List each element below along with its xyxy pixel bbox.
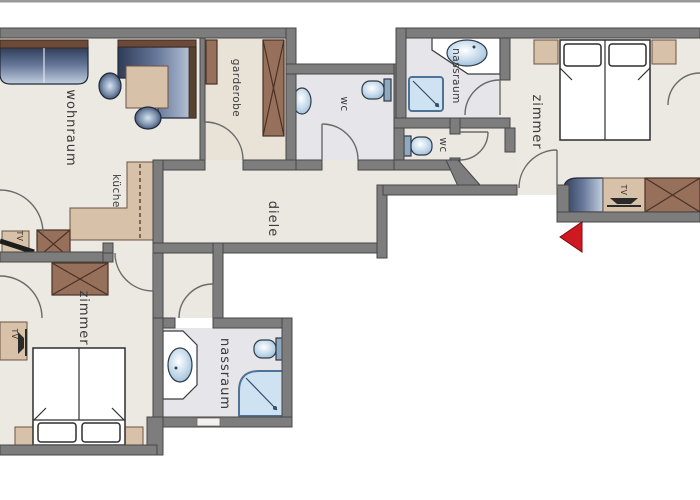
floor-corridor xyxy=(163,253,213,318)
toilet-tank xyxy=(384,79,391,101)
chair xyxy=(99,73,121,99)
entrance-arrow-icon xyxy=(560,222,582,252)
label-wc-main: wc xyxy=(338,96,350,111)
toilet xyxy=(362,81,384,99)
sofa-back-trim xyxy=(0,40,88,48)
label-wc-small: wc xyxy=(437,137,449,152)
wc-small-fixtures xyxy=(404,136,432,156)
chair xyxy=(135,107,161,129)
nightstand xyxy=(652,40,676,64)
nightstand xyxy=(15,427,33,447)
toilet-tank xyxy=(404,136,411,156)
nightstand xyxy=(534,40,558,64)
label-nassraum-top: nassraum xyxy=(450,48,462,104)
sink xyxy=(168,348,192,382)
wall-niche xyxy=(197,418,220,426)
corner-sofa-back-trim xyxy=(118,40,196,47)
pillow xyxy=(82,423,120,442)
label-wohnraum: wohnraum xyxy=(63,89,78,166)
toilet xyxy=(254,340,276,358)
dining-table xyxy=(126,66,168,108)
tv-label-zimmer-left: TV xyxy=(10,328,19,340)
label-diele: diele xyxy=(265,201,280,237)
wardrobe-door-leaf xyxy=(206,40,217,84)
label-zimmer-left: zimmer xyxy=(76,290,91,345)
label-kueche: küche xyxy=(110,174,122,208)
nightstand xyxy=(125,427,143,447)
pillow xyxy=(38,423,76,442)
pillow xyxy=(564,44,601,66)
corner-sofa-side-trim xyxy=(189,47,196,118)
cropped-top-wall xyxy=(0,0,700,3)
label-nassraum-bottom: nassraum xyxy=(217,338,232,410)
tv-label-livingroom: TV xyxy=(15,230,24,242)
floorplan: TV TV xyxy=(0,0,700,500)
toilet xyxy=(411,137,432,155)
pillow xyxy=(609,44,646,66)
label-zimmer-right: zimmer xyxy=(529,94,544,149)
tv-label-zimmer-right: TV xyxy=(619,184,628,196)
label-garderobe: garderobe xyxy=(230,59,242,118)
floorplan-drawing: TV TV xyxy=(0,0,700,500)
